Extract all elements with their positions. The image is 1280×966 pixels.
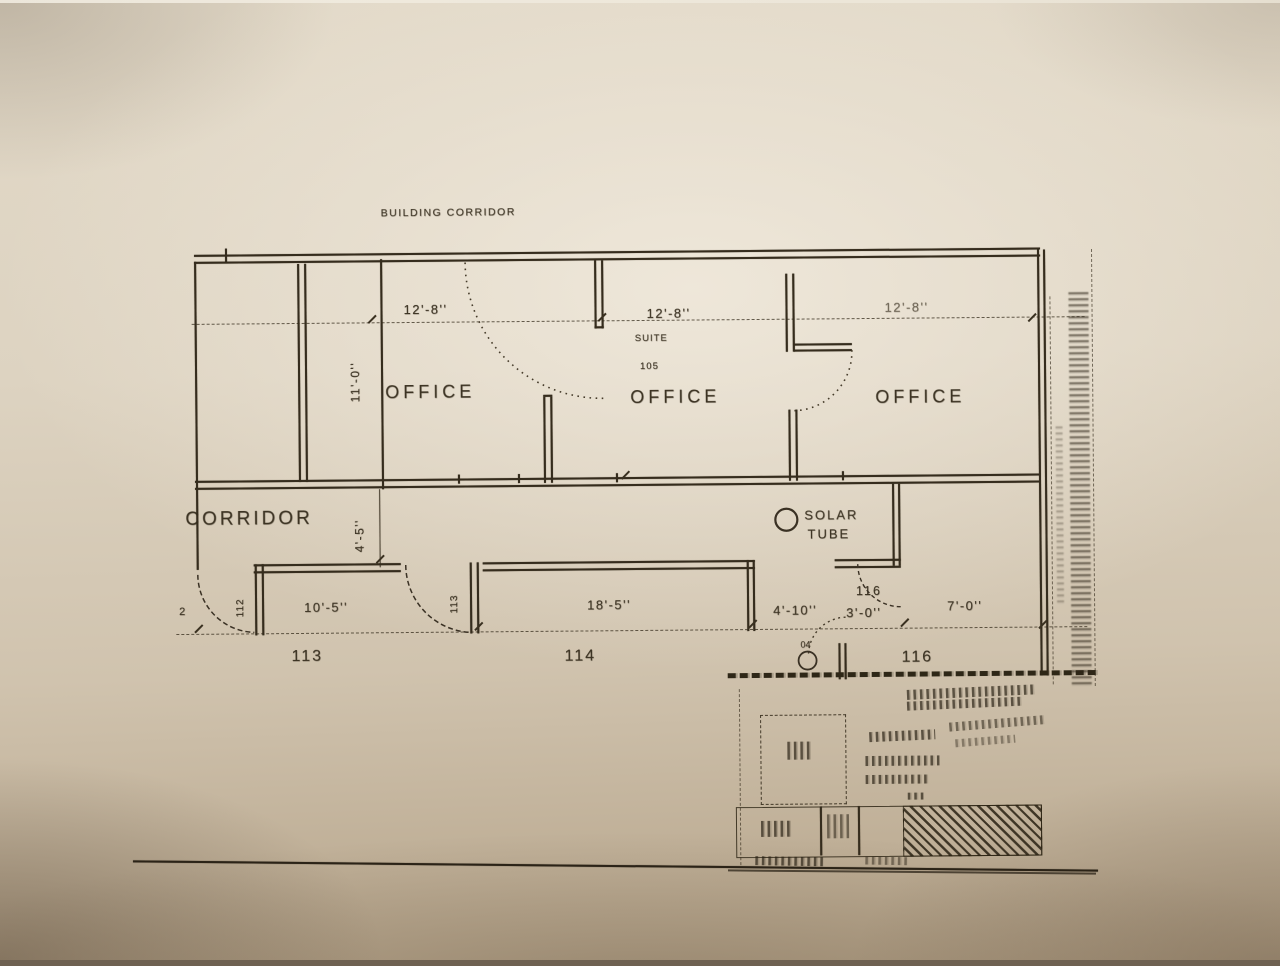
floor-plan: BUILDING CORRIDOR 12'-8'' 12'-8'' 12'-8'… — [0, 0, 1280, 966]
illegible-key-box-text — [787, 742, 811, 760]
door-arc-office-middle — [465, 261, 603, 399]
door-arc-corridor-left — [198, 574, 255, 632]
photographed-floor-plan-sheet: BUILDING CORRIDOR 12'-8'' 12'-8'' 12'-8'… — [0, 0, 1280, 960]
illegible-note-9 — [755, 856, 823, 866]
illegible-note-6 — [865, 755, 939, 766]
illegible-cell-text-2 — [827, 814, 849, 838]
illegible-note-8 — [908, 793, 924, 800]
door-arc-116 — [808, 617, 846, 653]
titleblock-hatched-cell — [903, 805, 1042, 857]
illegible-vertical-notes-smudge — [1068, 292, 1091, 687]
door-arc-office-right — [794, 350, 853, 411]
solar-tube-icon — [775, 509, 797, 531]
illegible-note-10 — [865, 856, 907, 865]
door-arc-113 — [406, 564, 473, 633]
illegible-note-7 — [866, 774, 930, 784]
illegible-cell-text-1 — [761, 821, 791, 837]
door-arc-closet — [858, 564, 901, 607]
keynote-circle-icon — [799, 651, 817, 669]
titleblock-divider-2 — [858, 806, 860, 855]
titleblock-divider-1 — [820, 806, 822, 855]
